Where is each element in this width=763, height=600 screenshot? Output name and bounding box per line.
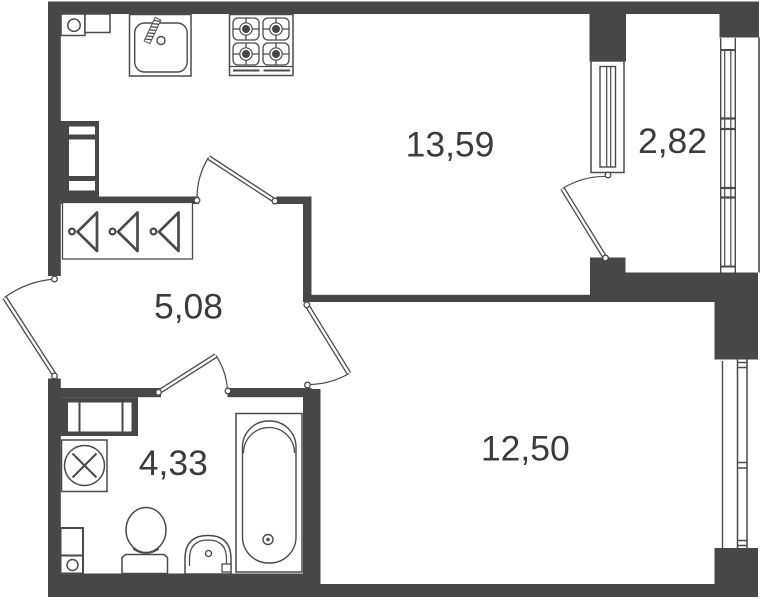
svg-text:5,08: 5,08 xyxy=(154,287,223,327)
svg-text:12,50: 12,50 xyxy=(481,429,570,469)
svg-text:13,59: 13,59 xyxy=(406,125,495,165)
svg-text:4,33: 4,33 xyxy=(139,443,208,483)
svg-text:2,82: 2,82 xyxy=(638,121,707,161)
